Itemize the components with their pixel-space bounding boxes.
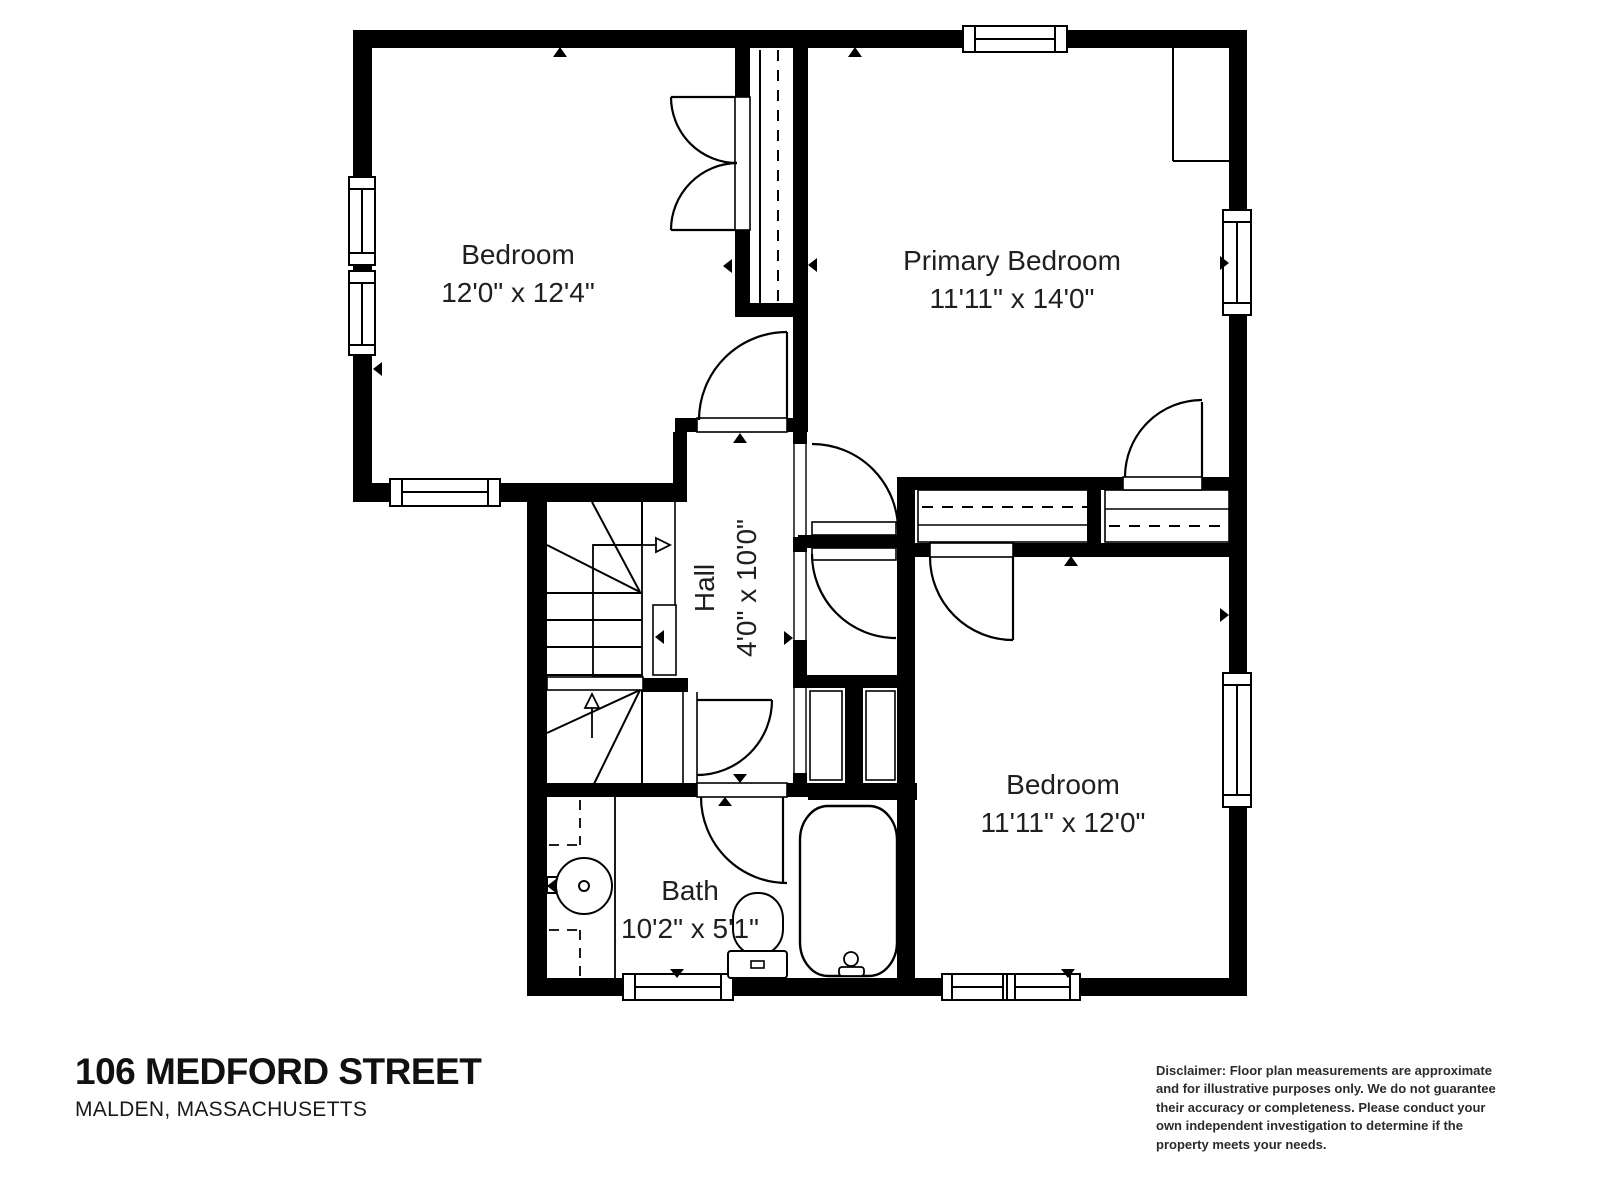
room-name: Hall <box>689 564 720 612</box>
window-bedroom-tl-bottom <box>390 479 500 506</box>
door-dressing-area <box>812 548 896 638</box>
disclaimer-text: Disclaimer: Floor plan measurements are … <box>1156 1062 1508 1154</box>
title-block: 106 MEDFORD STREET MALDEN, MASSACHUSETTS <box>75 1052 481 1122</box>
door-jambs <box>794 444 806 773</box>
floor-plan-drawing <box>0 0 1600 1200</box>
bathtub <box>800 806 897 976</box>
window-bedroom-br-bottom <box>942 974 1080 1000</box>
label-bedroom-top-left: Bedroom 12'0" x 12'4" <box>441 236 595 312</box>
door-bedroom-br <box>930 543 1013 640</box>
hall-closet-right <box>866 691 895 780</box>
stair-down-arrowhead <box>585 694 599 708</box>
stairs <box>547 502 676 786</box>
closet-details <box>675 48 1229 783</box>
door-closet-right <box>1123 400 1202 490</box>
room-name: Bedroom <box>1006 769 1120 800</box>
room-dimensions: 11'11" x 14'0" <box>903 280 1121 318</box>
door-primary-bedroom <box>812 444 898 535</box>
label-bath: Bath 10'2" x 5'1" <box>621 872 759 948</box>
window-bath-bottom <box>623 974 733 1000</box>
door-hall-closet <box>697 700 772 775</box>
window-top <box>963 26 1067 52</box>
window-left-1 <box>349 177 375 265</box>
property-city-state: MALDEN, MASSACHUSETTS <box>75 1098 481 1122</box>
room-name: Primary Bedroom <box>903 245 1121 276</box>
stair-up-arrowhead <box>656 538 670 552</box>
french-closet-doors <box>671 97 750 230</box>
stair-landing-rect <box>653 605 676 675</box>
room-dimensions: 12'0" x 12'4" <box>441 274 595 312</box>
window-left-2 <box>349 271 375 355</box>
hall-closet-left <box>810 691 842 780</box>
closet-below-primary-right <box>1105 490 1229 542</box>
closet-below-primary-left <box>918 490 1092 542</box>
room-name: Bath <box>661 875 719 906</box>
window-bedroom-br-right <box>1223 673 1251 807</box>
room-dimensions: 10'2" x 5'1" <box>621 910 759 948</box>
label-primary-bedroom: Primary Bedroom 11'11" x 14'0" <box>903 242 1121 318</box>
property-address: 106 MEDFORD STREET <box>75 1052 481 1092</box>
room-dimensions: 4'0" x 10'0" <box>726 519 768 657</box>
room-name: Bedroom <box>461 239 575 270</box>
door-bedroom-tl <box>697 332 787 432</box>
label-bedroom-bottom-right: Bedroom 11'11" x 12'0" <box>981 766 1146 842</box>
stair-marker <box>655 630 664 644</box>
floor-plan-page: Bedroom 12'0" x 12'4" Primary Bedroom 11… <box>0 0 1600 1200</box>
sink <box>547 858 612 914</box>
room-dimensions: 11'11" x 12'0" <box>981 804 1146 842</box>
door-bath <box>697 783 787 884</box>
primary-built-in-closet <box>1173 48 1229 161</box>
label-hall: Hall 4'0" x 10'0" <box>684 519 768 657</box>
